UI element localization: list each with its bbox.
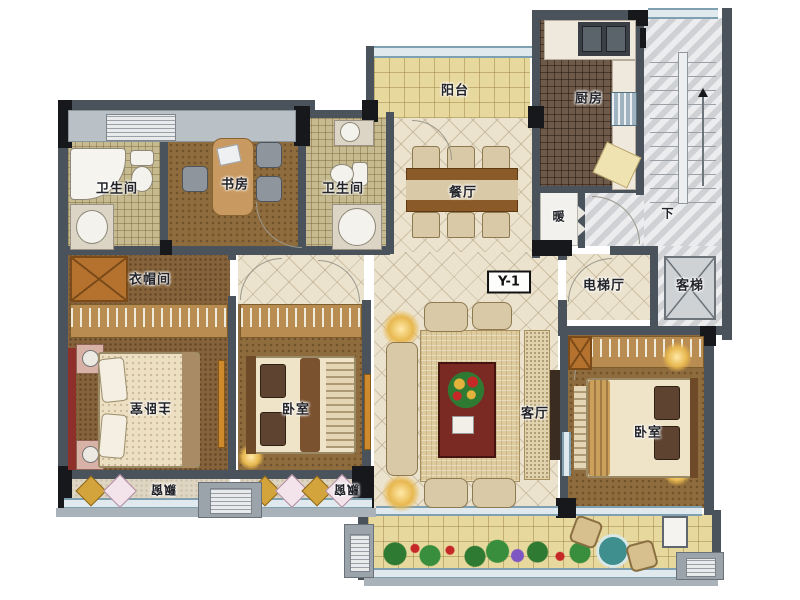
pillar [556,498,576,518]
pillar [640,28,646,48]
dining-chair [482,212,510,238]
sofa-seat [424,302,468,332]
wall [560,334,568,514]
pillow [260,364,286,398]
sink-basin [582,26,602,52]
pillar [294,106,310,146]
wall [58,100,68,515]
label-stairs-down: 下 [661,205,674,222]
pillar [532,240,572,256]
label-bay-window-master: 飘窗 [150,482,176,499]
label-bay-window-2: 飘窗 [333,482,359,499]
sliding-door [576,506,702,516]
wall [228,250,236,260]
side-cabinet [218,360,225,448]
ac-vent [210,488,252,514]
fridge [611,92,637,126]
bed-rug [574,386,586,470]
cabinet-ledge [68,110,296,142]
label-elevator: 客梯 [676,275,704,294]
ac-vent [686,558,716,577]
sink [338,208,376,246]
stair-arrow-up [698,88,708,97]
label-cloakroom: 衣帽间 [129,269,171,288]
side-table [662,516,688,548]
label-heater: 暖 [552,208,565,225]
wall [704,330,714,515]
label-master-bedroom: 主卧室 [129,400,171,419]
wardrobe-cabinet [70,256,128,302]
label-kitchen: 厨房 [575,88,603,107]
sill [364,578,718,586]
headboard [690,378,698,478]
heater-door-fold [578,222,586,236]
label-bath-mid: 卫生间 [322,178,364,197]
wall [650,246,658,330]
tv-wall-unit [550,370,560,460]
desk-chair [256,176,282,202]
blanket-fold [182,352,200,468]
sink-basin [606,26,626,52]
wall [532,10,540,258]
side-cabinet [364,374,371,450]
label-elevator-hall: 电梯厅 [583,275,625,294]
label-study: 书房 [221,174,249,193]
cloakroom-hanger-rail [70,304,228,338]
small-sink [340,122,360,142]
desk-chair [182,166,208,192]
wall [58,470,374,479]
wardrobe-cabinet [568,336,592,370]
sofa-seat [472,302,512,330]
toilet-tank [130,150,154,166]
bedroom2-wardrobe [240,304,362,338]
lamp [82,350,99,367]
label-bedroom-3: 卧室 [634,422,662,441]
wall [58,100,315,110]
pillow [98,357,128,403]
window [374,46,532,58]
sofa-long [386,342,418,476]
stair-arrow-line [702,96,704,186]
desk-chair [256,142,282,168]
dining-chair [412,212,440,238]
bed-rug [326,362,354,448]
pillow [98,413,128,459]
label-living: 客厅 [521,403,549,422]
round-table [596,534,630,568]
label-balcony: 阳台 [441,80,469,99]
heater-door-fold [578,206,586,220]
wall [228,296,236,478]
window [562,432,571,476]
vent-box [106,114,176,141]
lamp-glow [662,342,692,372]
dining-chair [447,212,475,238]
lamp-glow [382,474,420,512]
blanket-strip [588,380,610,476]
pillow [654,386,680,420]
window [648,8,718,19]
unit-code-box: Y-1 [487,271,531,294]
tea-tray [452,416,474,434]
sofa-seat [424,478,468,508]
accent-wall [68,348,76,470]
label-bath-left: 卫生间 [96,178,138,197]
label-bedroom-2: 卧室 [282,399,310,418]
sink [76,210,108,244]
ac-vent [350,534,370,572]
headboard [246,356,256,454]
pillar [362,100,378,122]
stair-rail [678,52,688,204]
pillar [160,240,172,255]
label-dining: 餐厅 [449,182,477,201]
floor-plan: 阳台 厨房 下 暖 卫生间 书房 卫生间 餐厅 Y-1 电梯厅 客梯 衣帽间 主… [0,0,800,600]
flower-bouquet [444,370,488,410]
sofa-seat [472,478,516,508]
wall [722,8,732,340]
wall [386,112,394,254]
lamp [82,446,99,463]
pillar [528,106,544,128]
